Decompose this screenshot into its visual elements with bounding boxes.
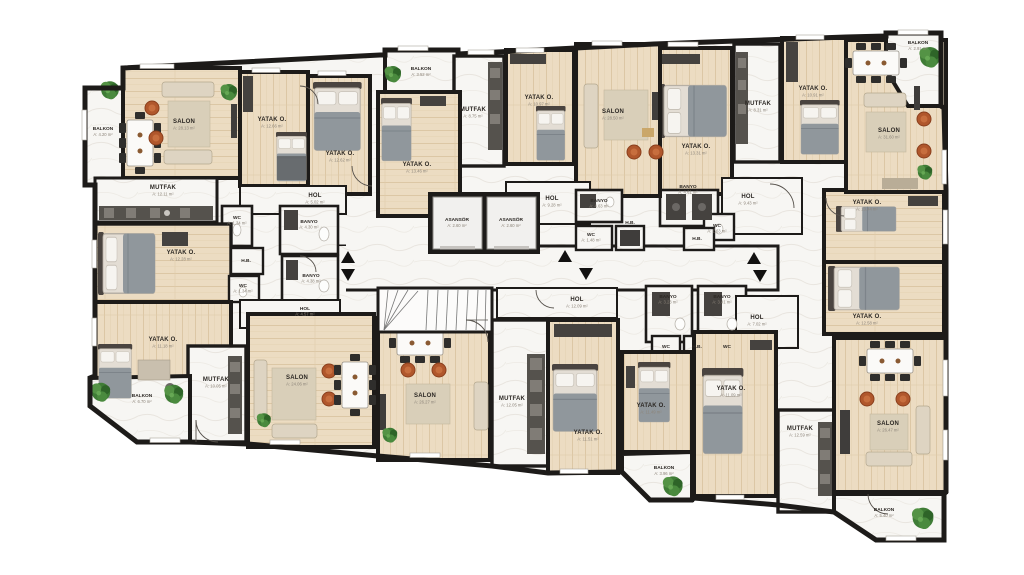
room-label: BALKONA: 3.52 m² bbox=[411, 66, 432, 77]
washer-hb-b bbox=[620, 230, 640, 246]
room-hol-g bbox=[497, 288, 617, 318]
room-label: YATAK O.A: 13.46 m² bbox=[403, 162, 432, 174]
room-label: YATAK O.A: 13.31 m² bbox=[682, 144, 711, 156]
room-label: YATAK O.A: 13.44 m² bbox=[853, 200, 882, 212]
furniture-mutfak-c bbox=[488, 62, 502, 150]
room-label: MUTFAKA: 12.05 m² bbox=[499, 396, 526, 408]
room-label: MUTFAKA: 10.05 m² bbox=[203, 377, 230, 389]
room-label: YATAK O.A: 11.51 m² bbox=[574, 430, 603, 442]
furniture-mutfak-e bbox=[818, 422, 832, 496]
toilet-wc-a bbox=[233, 224, 241, 236]
floor-plan-drawing: BALKONA: 4.20 m² SALONA: 28.13 m² YATAK … bbox=[0, 0, 1024, 575]
room-balkon-h bbox=[622, 452, 692, 500]
elevator-core bbox=[428, 192, 540, 254]
room-label: BALKONA: 5.40 m² bbox=[874, 507, 895, 518]
room-label: H.B. bbox=[241, 258, 251, 264]
room-label: BALKONA: 6.70 m² bbox=[132, 393, 153, 404]
staircase bbox=[378, 288, 492, 332]
room-label: YATAK O.A: 11.18 m² bbox=[149, 337, 178, 349]
room-label: YATAK O.A: 10.91 m² bbox=[799, 86, 828, 98]
room-label: SALONA: 26.47 m² bbox=[877, 421, 899, 433]
room-label: YATAK O.A: 11.09 m² bbox=[717, 386, 746, 398]
room-label: BANYOA: 3.41 m² bbox=[712, 294, 732, 305]
room-label: YATAK O.A: 12.66 m² bbox=[258, 117, 287, 129]
room-label: WC bbox=[723, 344, 732, 350]
room-label: YATAK O.A: 12.62 m² bbox=[326, 151, 355, 163]
room-label: SALONA: 24.06 m² bbox=[286, 375, 308, 387]
room-label: BANYOA: 3.23 m² bbox=[658, 294, 678, 305]
furniture-yatak-e2 bbox=[828, 266, 899, 311]
room-label: MUTFAKA: 8.31 m² bbox=[745, 101, 772, 113]
elevator-label: ASANSÖRA: 2.60 m² bbox=[499, 216, 524, 228]
room-label: H.B. bbox=[692, 236, 702, 242]
room-label: SALONA: 26.27 m² bbox=[414, 393, 436, 405]
room-label: MUTFAKA: 8.75 m² bbox=[460, 107, 487, 119]
room-label: WC bbox=[662, 344, 671, 350]
room-label: YATAK O.A: 12.28 m² bbox=[167, 250, 196, 262]
corridor-floor-north bbox=[346, 216, 428, 248]
room-label: H.B. bbox=[625, 220, 635, 226]
room-label: YATAK O.A: 12.58 m² bbox=[853, 314, 882, 326]
corridor-floor bbox=[340, 246, 778, 290]
unit-h bbox=[622, 286, 798, 500]
unit-f bbox=[90, 224, 376, 447]
elevator-label: ASANSÖRA: 2.60 m² bbox=[445, 216, 470, 228]
room-label: SALONA: 28.50 m² bbox=[602, 109, 624, 121]
furniture-mutfak-g bbox=[527, 354, 545, 454]
room-label: BALKONA: 2.91 m² bbox=[908, 40, 929, 51]
room-label: H.B. bbox=[692, 344, 702, 350]
elevator-door-1 bbox=[440, 246, 475, 250]
room-label: BANYOA: 4.63 m² bbox=[589, 198, 609, 209]
room-label: BALKONA: 3.96 m² bbox=[654, 465, 675, 476]
room-label: MUTFAKA: 12.59 m² bbox=[787, 426, 814, 438]
room-label: SALONA: 31.60 m² bbox=[878, 128, 900, 140]
furniture-mutfak-d bbox=[736, 52, 748, 144]
room-label: YATAK O.A: 11.49 m² bbox=[637, 403, 666, 415]
room-label: BALKONA: 4.20 m² bbox=[93, 126, 114, 137]
elevator-door-2 bbox=[494, 246, 529, 250]
furniture-yatak-a2 bbox=[313, 82, 362, 150]
room-label: MUTFAKA: 12.11 m² bbox=[150, 185, 177, 197]
furniture-mutfak-a bbox=[99, 206, 213, 220]
room-label: SALONA: 28.13 m² bbox=[173, 119, 195, 131]
floor-plan-page: BALKONA: 4.20 m² SALONA: 28.13 m² YATAK … bbox=[0, 0, 1024, 575]
furniture-mutfak-f bbox=[228, 356, 242, 434]
room-label: BANYOA: 4.30 m² bbox=[299, 219, 319, 230]
room-label: BANYOA: 4.61 m² bbox=[678, 184, 698, 195]
room-label: YATAK O.A: 10.97 m² bbox=[525, 95, 554, 107]
room-label: BANYOA: 4.38 m² bbox=[301, 273, 321, 284]
